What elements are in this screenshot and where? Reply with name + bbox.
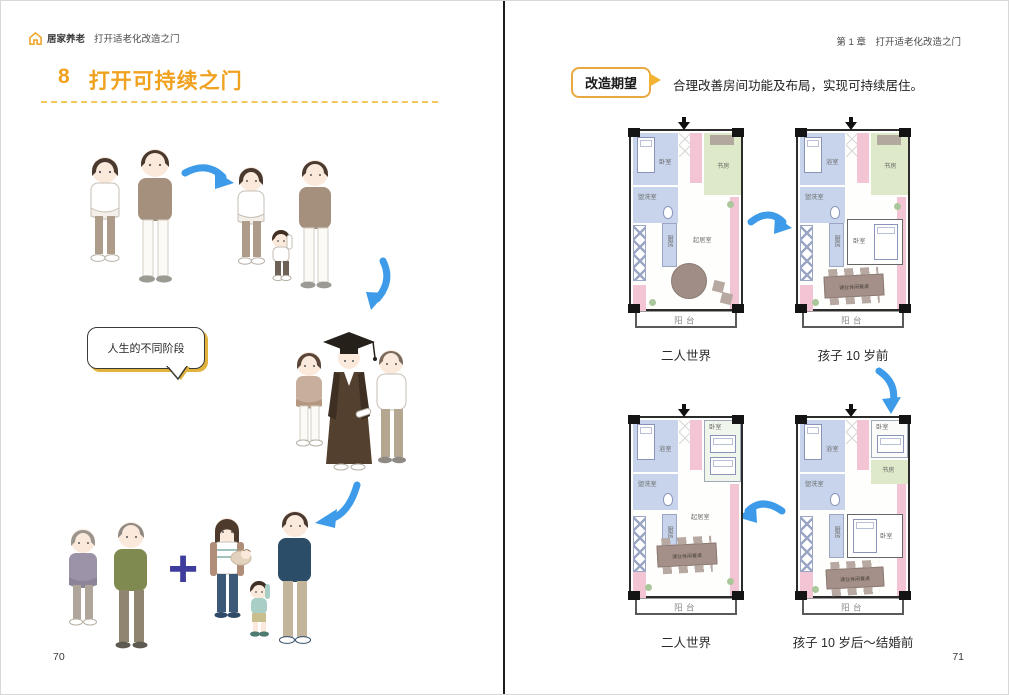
room-label-bath: 浴室: [826, 159, 838, 166]
balcony: 阳台: [635, 311, 737, 328]
title-underline: [41, 89, 438, 103]
room-label-kitchen: 厨房: [666, 235, 673, 247]
entrance-arrow-icon: [678, 117, 690, 130]
left-running-header: 居家养老 打开适老化改造之门: [29, 31, 180, 45]
balcony-label: 阳台: [674, 600, 698, 613]
home-icon: [29, 32, 42, 45]
room-label-washroom: 盥洗室: [805, 481, 824, 488]
bubble-tail: [165, 366, 191, 381]
plus-sign: +: [164, 551, 202, 589]
arrow-plan-left-icon: [736, 495, 786, 531]
arrow-stage2-icon: [353, 257, 393, 311]
plan-caption: 二人世界: [661, 345, 711, 364]
dining-table: 课业休闲餐桌: [823, 273, 884, 298]
floor-plan-body: 浴室 盥洗室 卧室 书房 厨房 卧室 课业休闲: [796, 416, 910, 598]
room-label-bedroom: 卧室: [709, 424, 721, 431]
room-label-washroom: 盥洗室: [638, 481, 657, 488]
room-label-living: 起居室: [691, 514, 710, 521]
room-label-kitchen: 厨房: [666, 526, 673, 538]
room-label-washroom: 盥洗室: [638, 194, 657, 201]
figure-graduation: [284, 324, 416, 484]
right-running-header: 第 1 章 打开适老化改造之门: [836, 34, 961, 48]
room-label-kitchen: 厨房: [833, 235, 840, 247]
page-number-right: 71: [952, 651, 964, 663]
renovation-expectation-badge: 改造期望: [571, 67, 651, 98]
floor-plan-child-over10: 浴室 盥洗室 卧室 书房 厨房 卧室 课业休闲: [796, 416, 910, 615]
book-spread: 居家养老 打开适老化改造之门 8 打开可持续之门: [0, 0, 1009, 695]
table-label: 课业休闲餐桌: [840, 573, 870, 582]
floor-plan-couple-after: 浴室 盥洗室 卧室 厨房 起居室 课业休闲餐桌 阳台 二人世界: [629, 416, 743, 615]
room-label-bath: 浴室: [826, 446, 838, 453]
lead-text: 合理改善房间功能及布局，实现可持续居住。: [673, 75, 923, 94]
balcony-label: 阳台: [841, 313, 865, 326]
room-label-bedroom-bottom: 卧室: [880, 533, 892, 540]
balcony-label: 阳台: [674, 313, 698, 326]
room-label-kitchen: 厨房: [833, 526, 840, 538]
room-label-study: 书房: [882, 467, 894, 474]
page-divider: [503, 1, 505, 695]
master-bedroom: 卧室: [704, 420, 741, 482]
floor-plan-couple-before: 卧室 盥洗室 书房 厨房 起居室 阳台 二人世界: [629, 129, 743, 328]
badge-triangle-icon: [649, 73, 661, 87]
floor-plan-body: 浴室 盥洗室 书房 厨房 卧室 课业休闲餐桌: [796, 129, 910, 311]
header-brand: 居家养老: [47, 31, 85, 45]
room-label-study: 书房: [884, 163, 896, 170]
room-label-study: 书房: [717, 163, 729, 170]
page-number-left: 70: [53, 651, 65, 663]
figure-family-toddler: [225, 151, 345, 303]
figure-young-family: [199, 504, 323, 656]
dining-table: 课业休闲餐桌: [826, 566, 885, 589]
plan-caption: 孩子 10 岁前: [818, 345, 889, 364]
bubble-text: 人生的不同阶段: [108, 340, 185, 356]
entrance-arrow-icon: [678, 404, 690, 417]
plan-caption: 孩子 10 岁后～结婚前: [793, 632, 914, 651]
life-stages-bubble: 人生的不同阶段: [87, 327, 205, 369]
arrow-plan-right-icon: [747, 206, 793, 242]
center-bedroom: 卧室: [847, 219, 903, 265]
floor-plan-child-under10: 浴室 盥洗室 书房 厨房 卧室 课业休闲餐桌 阳台 孩子 10 岁前: [796, 129, 910, 328]
round-dining-table: [671, 263, 707, 299]
floor-plan-body: 卧室 盥洗室 书房 厨房 起居室: [629, 129, 743, 311]
floor-plan-body: 浴室 盥洗室 卧室 厨房 起居室 课业休闲餐桌: [629, 416, 743, 598]
figure-young-couple: [73, 138, 189, 294]
room-label-living: 起居室: [693, 237, 712, 244]
plan-caption: 二人世界: [661, 632, 711, 651]
table-label: 课业休闲餐桌: [672, 550, 702, 559]
figure-elderly-couple: [53, 509, 167, 655]
room-label-bedroom-top: 卧室: [876, 424, 888, 431]
header-chapter: 打开适老化改造之门: [94, 31, 180, 45]
dining-table: 课业休闲餐桌: [656, 542, 717, 567]
entrance-arrow-icon: [845, 117, 857, 130]
small-study: 书房: [871, 460, 908, 484]
entrance-arrow-icon: [845, 404, 857, 417]
room-label-bath: 浴室: [659, 446, 671, 453]
balcony: 阳台: [802, 598, 904, 615]
balcony: 阳台: [635, 598, 737, 615]
room-label-bedroom: 卧室: [853, 238, 865, 245]
room-label-washroom: 盥洗室: [805, 194, 824, 201]
center-bedroom: 卧室: [847, 514, 903, 558]
balcony: 阳台: [802, 311, 904, 328]
table-label: 课业休闲餐桌: [839, 281, 869, 290]
room-label-bedroom: 卧室: [659, 159, 671, 166]
upper-bedroom: 卧室: [871, 420, 908, 458]
balcony-label: 阳台: [841, 600, 865, 613]
arrow-plan-down-icon: [867, 367, 907, 415]
